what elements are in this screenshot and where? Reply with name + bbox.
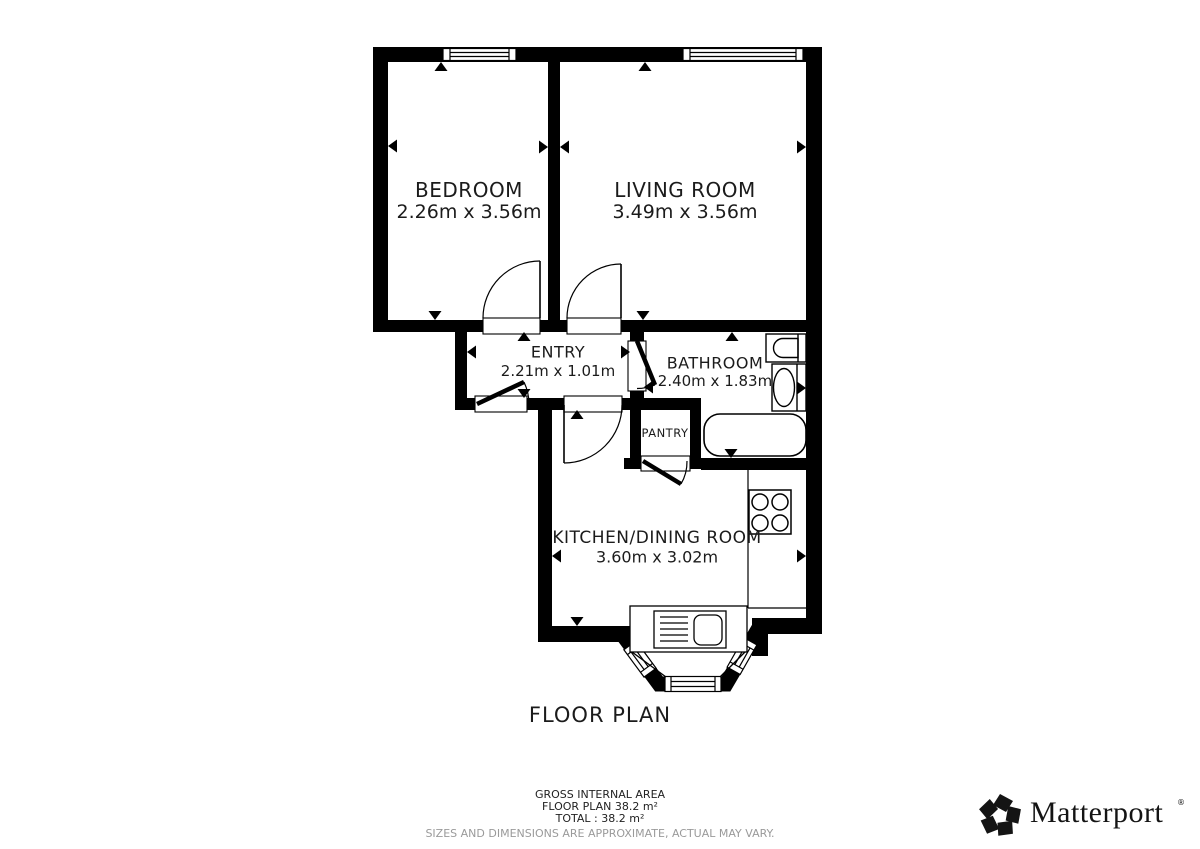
entry-label: ENTRY xyxy=(531,343,585,362)
kitchen-label: KITCHEN/DINING ROOM xyxy=(552,528,761,548)
floor-plan-page: BEDROOM 2.26m x 3.56m LIVING ROOM 3.49m … xyxy=(0,0,1200,849)
bedroom-door xyxy=(483,261,540,318)
bathroom-fixtures xyxy=(704,334,806,456)
bedroom-window xyxy=(443,49,516,61)
bedroom-label: BEDROOM xyxy=(415,178,523,202)
kitchen-door xyxy=(564,405,622,463)
living-room-dimensions: 3.49m x 3.56m xyxy=(613,201,758,223)
kitchen-dimensions: 3.60m x 3.02m xyxy=(596,548,718,567)
bathtub xyxy=(704,414,806,456)
bay-window-bottom xyxy=(665,677,721,692)
kitchen-fixtures xyxy=(630,470,806,677)
living-room-door xyxy=(567,264,621,318)
bathroom-label: BATHROOM xyxy=(667,354,764,373)
bathroom-sink xyxy=(766,334,806,362)
pantry-label: PANTRY xyxy=(642,426,689,440)
bathroom-dimensions: 2.40m x 1.83m xyxy=(658,372,772,390)
registered-trademark-mark: ® xyxy=(1177,798,1185,807)
bedroom-dimensions: 2.26m x 3.56m xyxy=(397,201,542,223)
entry-dimensions: 2.21m x 1.01m xyxy=(501,362,615,380)
page-title: FLOOR PLAN xyxy=(0,703,1200,727)
matterport-logo: Matterport ® xyxy=(972,790,1187,842)
matterport-pinwheel-icon xyxy=(976,792,1024,840)
matterport-wordmark: Matterport xyxy=(1030,796,1163,830)
living-room-window xyxy=(683,49,803,61)
wall-openings xyxy=(475,318,690,471)
living-room-label: LIVING ROOM xyxy=(614,178,756,202)
